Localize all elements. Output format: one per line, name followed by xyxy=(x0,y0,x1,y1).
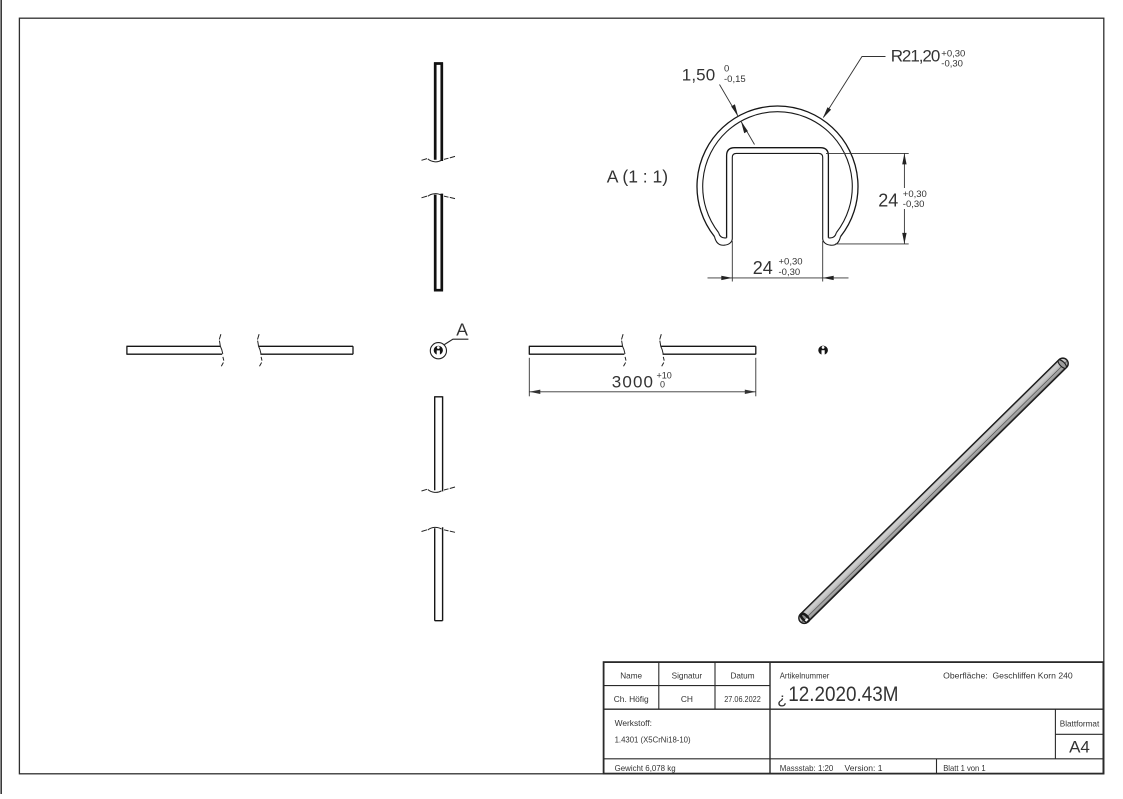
svg-text:-0,30: -0,30 xyxy=(779,267,801,278)
svg-text:-0,30: -0,30 xyxy=(941,58,963,69)
svg-text:Datum: Datum xyxy=(730,672,754,681)
svg-text:Artikelnummer: Artikelnummer xyxy=(780,672,830,681)
svg-text:A: A xyxy=(456,319,468,339)
svg-text:Blattformat: Blattformat xyxy=(1060,720,1100,729)
svg-text:1.4301 (X5CrNi18-10): 1.4301 (X5CrNi18-10) xyxy=(615,735,691,745)
svg-text:-0,15: -0,15 xyxy=(724,74,746,85)
svg-text:Signatur: Signatur xyxy=(672,672,703,681)
svg-text:24: 24 xyxy=(753,258,773,278)
svg-text:Gewicht 6,078 kg: Gewicht 6,078 kg xyxy=(615,763,676,773)
svg-text:¿: ¿ xyxy=(777,691,787,708)
svg-text:0: 0 xyxy=(724,64,729,75)
svg-text:Werkstoff:: Werkstoff: xyxy=(615,718,652,728)
svg-text:Version: 1: Version: 1 xyxy=(845,763,883,773)
svg-text:1,50: 1,50 xyxy=(682,66,715,85)
svg-text:24: 24 xyxy=(878,190,898,210)
svg-text:A (1 : 1): A (1 : 1) xyxy=(607,167,668,187)
svg-text:12.2020.43M: 12.2020.43M xyxy=(788,682,898,706)
svg-text:Massstab: 1:20: Massstab: 1:20 xyxy=(780,763,834,773)
svg-text:CH: CH xyxy=(681,694,693,704)
svg-text:Name: Name xyxy=(620,672,642,681)
svg-text:Oberfläche: Geschliffen Korn: Oberfläche: Geschliffen Korn 240 xyxy=(943,671,1073,681)
svg-text:R21,20: R21,20 xyxy=(891,47,941,66)
svg-text:Blatt 1 von 1: Blatt 1 von 1 xyxy=(943,763,986,773)
svg-text:0: 0 xyxy=(660,379,665,389)
svg-text:27.06.2022: 27.06.2022 xyxy=(724,695,761,704)
svg-text:3000: 3000 xyxy=(612,373,653,392)
svg-text:-0,30: -0,30 xyxy=(903,199,925,210)
svg-text:Ch. Höfig: Ch. Höfig xyxy=(614,694,649,704)
svg-text:+0,30: +0,30 xyxy=(779,256,803,267)
svg-text:A4: A4 xyxy=(1069,738,1090,757)
